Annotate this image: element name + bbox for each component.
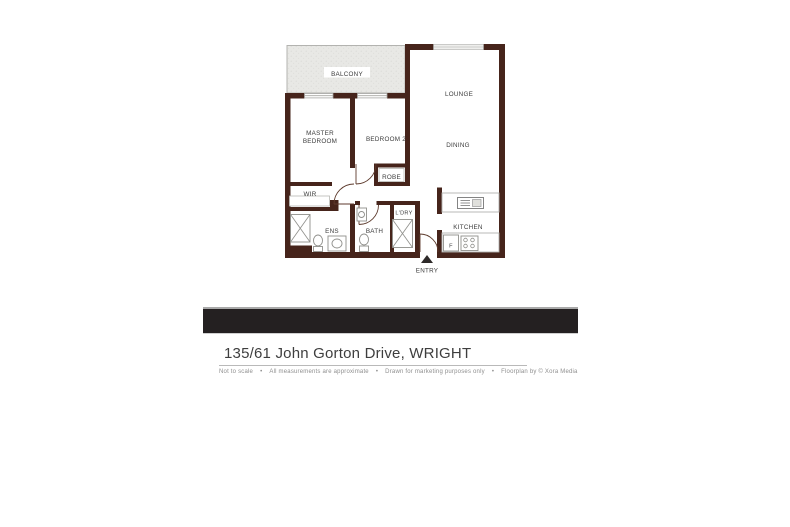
disclaimer-marketing: Drawn for marketing purposes only <box>385 369 485 375</box>
disclaimer-not-to-scale: Not to scale <box>219 369 253 375</box>
window <box>434 45 484 49</box>
bath-basin-icon <box>357 208 367 221</box>
brand-banner <box>203 307 578 334</box>
kitchen-label: KITCHEN <box>453 224 483 231</box>
master-bedroom-label-line1: MASTER <box>306 130 334 137</box>
disclaimer-credit: Floorplan by © Xora Media <box>501 369 577 375</box>
ensuite-label: ENS <box>325 228 339 235</box>
cooktop-icon <box>458 198 484 209</box>
property-address: 135/61 John Gorton Drive, WRIGHT <box>224 345 471 362</box>
laundry-tub-icon <box>393 220 413 248</box>
bullet-separator: • <box>492 369 494 375</box>
dining-label: DINING <box>446 142 470 149</box>
wir-label: WIR <box>304 191 317 198</box>
door-arc-entry <box>420 234 438 252</box>
balcony-area <box>287 46 405 94</box>
disclaimer-line: Not to scale • All measurements are appr… <box>219 369 578 375</box>
caption-divider <box>219 365 527 366</box>
floorplan-drawing: BALCONY LOUNGE MASTER BEDROOM BEDROOM 2 … <box>0 0 790 527</box>
door-arc-bedroom2 <box>356 164 376 184</box>
window <box>358 94 388 98</box>
laundry-label: L'DRY <box>395 211 412 217</box>
sink-icon <box>461 236 478 251</box>
bullet-separator: • <box>260 369 262 375</box>
window <box>305 94 334 98</box>
bath-label: BATH <box>366 228 384 235</box>
entry-label: ENTRY <box>416 268 439 275</box>
bullet-separator: • <box>376 369 378 375</box>
fridge-label: F <box>449 244 453 250</box>
ens-vanity-icon <box>328 236 346 251</box>
bath-toilet-icon <box>360 234 369 252</box>
lounge-label: LOUNGE <box>445 91 473 98</box>
entry-arrow-icon <box>421 255 433 263</box>
robe-label: ROBE <box>382 174 401 181</box>
shower-icon <box>291 215 311 243</box>
floorplan-page: BALCONY LOUNGE MASTER BEDROOM BEDROOM 2 … <box>0 0 790 527</box>
balcony-label: BALCONY <box>331 71 363 78</box>
ens-toilet-icon <box>314 235 323 252</box>
bedroom2-label: BEDROOM 2 <box>366 136 406 143</box>
kitchen-island-bench <box>442 193 499 212</box>
disclaimer-measurements: All measurements are approximate <box>269 369 368 375</box>
master-bedroom-label-line2: BEDROOM <box>303 138 337 145</box>
